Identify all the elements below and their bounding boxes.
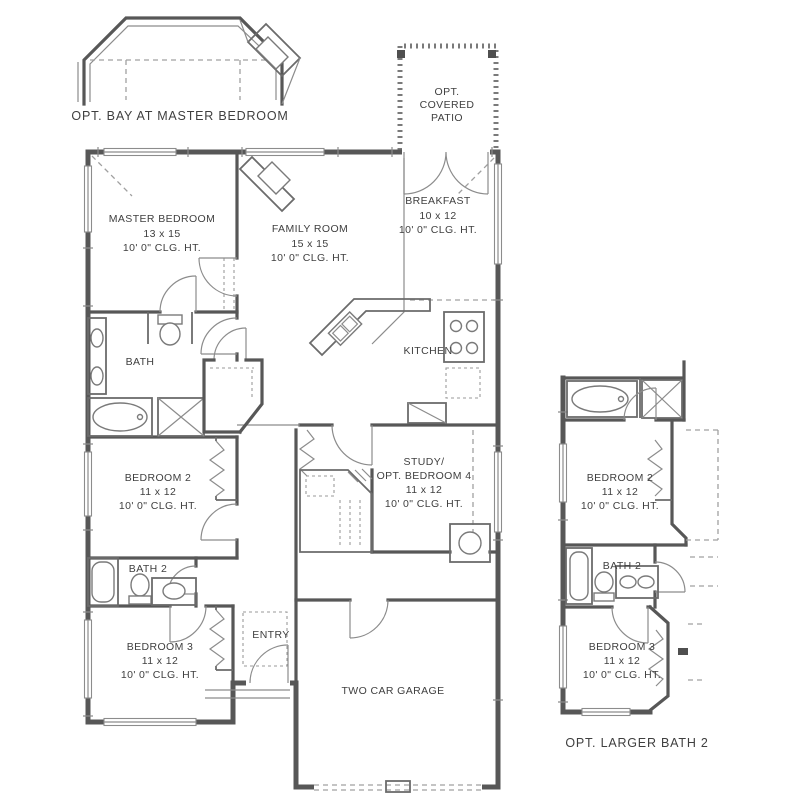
kitchen-label: KITCHEN: [404, 345, 453, 357]
study-clg: 10' 0" CLG. HT.: [385, 498, 463, 510]
door-swing-icon: [201, 318, 237, 354]
family-room-clg: 10' 0" CLG. HT.: [271, 252, 349, 264]
entry-label: ENTRY: [252, 629, 289, 641]
porch-steps: [205, 690, 290, 698]
patio-wall-dotted: [400, 46, 496, 150]
bath-label: BATH: [126, 356, 155, 368]
room-labels: MASTER BEDROOM 13 x 15 10' 0" CLG. HT. F…: [109, 195, 661, 697]
bedroom2-label: BEDROOM 2: [125, 472, 192, 484]
larger-bath-caption: OPT. LARGER BATH 2: [565, 736, 708, 750]
inset-bedroom3-dims: 11 x 12: [604, 655, 640, 667]
opt-bay-inset: OPT. BAY AT MASTER BEDROOM: [71, 18, 300, 123]
toilet-icon: [158, 315, 182, 345]
bedroom2-dims: 11 x 12: [140, 486, 176, 498]
opt-larger-bath-inset: OPT. LARGER BATH 2: [558, 362, 718, 750]
bifold-closet-door-icon: [648, 440, 672, 500]
inset-bedroom2-east-wall: [672, 420, 686, 545]
door-swing-icon: [350, 600, 388, 638]
bathtub-icon: [88, 558, 118, 606]
shower-icon: [640, 378, 682, 418]
bay-caption: OPT. BAY AT MASTER BEDROOM: [71, 109, 288, 123]
inset-bedroom2-dims: 11 x 12: [602, 486, 638, 498]
family-room-dims: 15 x 15: [291, 238, 328, 250]
garage-label: TWO CAR GARAGE: [341, 685, 444, 697]
inset-bedroom3-clg: 10' 0" CLG. HT.: [583, 669, 661, 681]
door-swing-icon: [214, 328, 246, 360]
bathtub-icon: [567, 381, 637, 417]
master-bedroom-label: MASTER BEDROOM: [109, 213, 216, 225]
shower-icon: [158, 398, 204, 436]
pantry-closet: [300, 469, 372, 552]
sink-icon: [91, 367, 103, 385]
bedroom2-clg: 10' 0" CLG. HT.: [119, 500, 197, 512]
patio-door-swing-icon: [402, 148, 490, 194]
inset-bedroom3-east-wall: [648, 607, 668, 712]
bathtub-icon: [88, 398, 152, 436]
kitchen-sink-icon: [328, 312, 361, 345]
sink-icon: [91, 329, 103, 347]
breakfast-clg: 10' 0" CLG. HT.: [399, 224, 477, 236]
walk-in-closet: [204, 360, 262, 432]
breakfast-family-divider: [372, 158, 404, 344]
door-swing-icon: [170, 606, 206, 642]
master-bath: [88, 312, 262, 436]
opt-covered-patio: OPT. COVERED PATIO: [397, 46, 496, 150]
inset-bath2-fixtures: [566, 548, 658, 604]
inset-bedroom3-label: BEDROOM 3: [589, 641, 656, 653]
inset-dashed-extension: [678, 430, 718, 680]
study-label-1: STUDY/: [404, 456, 445, 468]
door-swing-icon: [332, 425, 372, 465]
kitchen-fixtures: [310, 299, 484, 423]
door-swing-icon: [160, 276, 196, 312]
cabinet-block: [408, 403, 446, 423]
door-swing-icon: [201, 504, 237, 540]
study-dims: 11 x 12: [406, 484, 442, 496]
patio-label-2: COVERED: [420, 99, 475, 111]
toilet-icon: [129, 574, 151, 604]
bedroom3-clg: 10' 0" CLG. HT.: [121, 669, 199, 681]
bedroom3-label: BEDROOM 3: [127, 641, 194, 653]
bath2-label: BATH 2: [129, 563, 167, 575]
garage-door: [314, 781, 482, 792]
bedroom3-dims: 11 x 12: [142, 655, 178, 667]
patio-post: [488, 50, 496, 58]
toilet-icon: [594, 572, 614, 601]
bay-wall: [84, 18, 282, 104]
refrigerator-dash: [446, 368, 480, 398]
door-swing-icon: [655, 562, 685, 592]
fireplace-icon: [240, 20, 300, 104]
patio-label-3: PATIO: [431, 112, 463, 124]
sink-icon: [152, 578, 196, 605]
breakfast-dims: 10 x 12: [419, 210, 456, 222]
patio-label-1: OPT.: [435, 86, 460, 98]
bifold-closet-door-icon: [210, 437, 237, 500]
floor-plan: OPT. BAY AT MASTER BEDROOM OPT. COVERED …: [0, 0, 810, 810]
breakfast-label: BREAKFAST: [405, 195, 471, 207]
family-room-label: FAMILY ROOM: [272, 223, 348, 235]
door-swing-icon: [612, 607, 648, 643]
fireplace-icon: [240, 157, 294, 211]
master-bedroom-dims: 13 x 15: [143, 228, 180, 240]
bathtub-icon: [566, 548, 592, 604]
study-label-2: OPT. BEDROOM 4: [377, 470, 472, 482]
ceiling-break-dash: [92, 156, 494, 196]
bay-window-inner-line: [90, 26, 276, 102]
bay-dash-verticals: [126, 60, 240, 100]
floor-plan-drawing: OPT. BAY AT MASTER BEDROOM OPT. COVERED …: [0, 0, 810, 810]
inset-bath2-label: BATH 2: [603, 560, 641, 572]
vestibule-dash: [224, 258, 234, 310]
inset-bedroom2-label: BEDROOM 2: [587, 472, 654, 484]
patio-post: [397, 50, 405, 58]
door-swing-icon: [199, 258, 237, 296]
water-heater-icon: [450, 524, 490, 562]
inset-bedroom2-clg: 10' 0" CLG. HT.: [581, 500, 659, 512]
bifold-closet-door-icon: [210, 606, 233, 670]
master-bedroom-clg: 10' 0" CLG. HT.: [123, 242, 201, 254]
